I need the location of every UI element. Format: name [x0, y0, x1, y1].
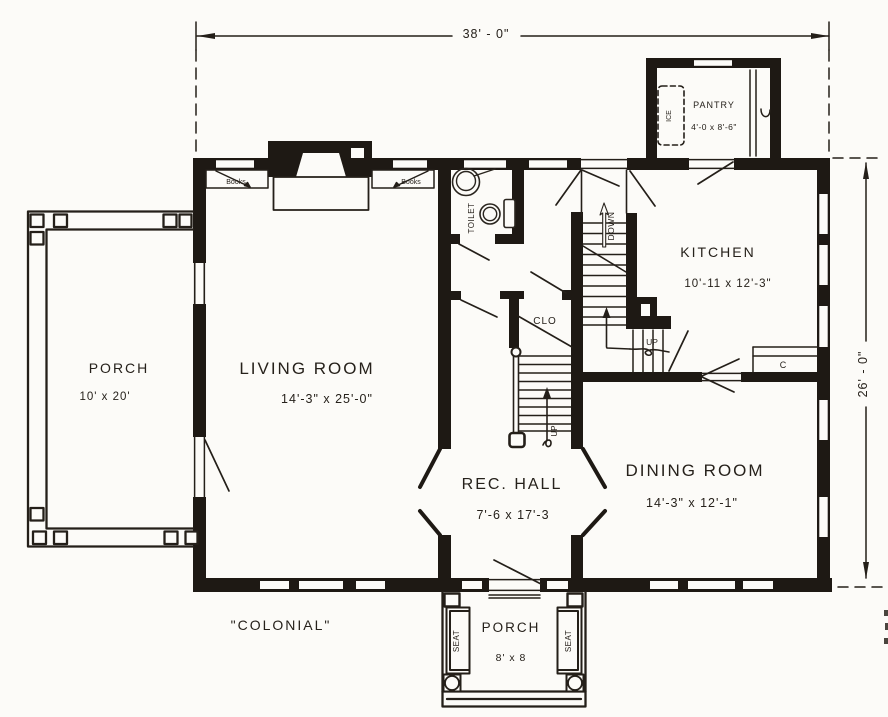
svg-text:PORCH: PORCH [89, 360, 150, 376]
svg-text:ICE: ICE [666, 110, 673, 122]
svg-text:DOWN: DOWN [606, 212, 616, 241]
svg-text:Books: Books [401, 179, 421, 186]
svg-text:LIVING ROOM: LIVING ROOM [239, 359, 374, 378]
svg-text:4'-0 x 8'-6": 4'-0 x 8'-6" [691, 122, 737, 132]
svg-text:UP: UP [550, 425, 559, 436]
svg-text:38' - 0": 38' - 0" [463, 27, 510, 41]
svg-text:SEAT: SEAT [452, 630, 461, 652]
svg-text:Books: Books [226, 179, 246, 186]
svg-text:10' x 20': 10' x 20' [79, 391, 130, 403]
svg-text:26' - 0": 26' - 0" [856, 351, 870, 398]
svg-text:PORCH: PORCH [482, 620, 541, 635]
svg-text:8' x 8: 8' x 8 [496, 652, 527, 664]
svg-text:7'-6 x 17'-3: 7'-6 x 17'-3 [476, 508, 549, 522]
svg-text:KITCHEN: KITCHEN [680, 244, 755, 260]
svg-text:C: C [780, 360, 787, 370]
svg-text:14'-3" x 25'-0": 14'-3" x 25'-0" [281, 392, 373, 406]
svg-text:"COLONIAL": "COLONIAL" [231, 617, 332, 633]
svg-text:PANTRY: PANTRY [693, 100, 735, 110]
svg-text:UP: UP [646, 337, 658, 347]
svg-text:SEAT: SEAT [564, 630, 573, 652]
svg-text:CLO: CLO [533, 316, 557, 327]
svg-text:DINING ROOM: DINING ROOM [625, 461, 764, 480]
svg-text:14'-3" x 12'-1": 14'-3" x 12'-1" [646, 496, 738, 510]
svg-text:TOILET: TOILET [467, 203, 476, 234]
svg-text:REC. HALL: REC. HALL [462, 476, 563, 493]
svg-text:10'-11 x 12'-3": 10'-11 x 12'-3" [684, 278, 771, 290]
